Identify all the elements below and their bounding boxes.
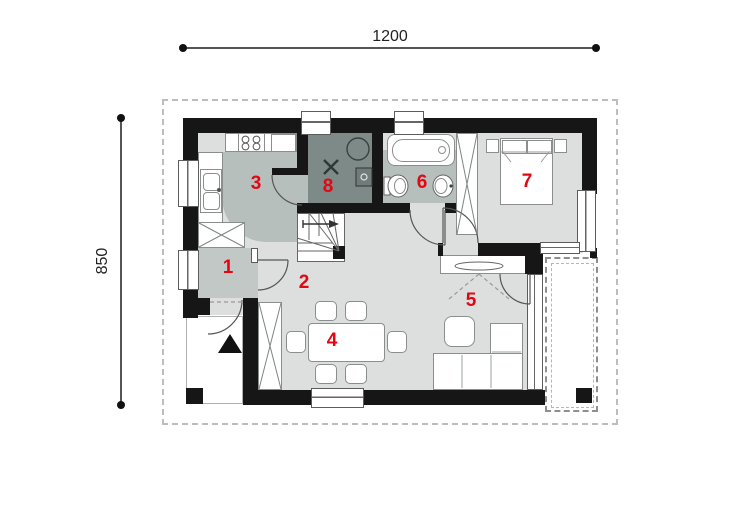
floor-plan: 1200 850 xyxy=(0,0,735,520)
wardrobe-bedroom xyxy=(456,133,478,235)
window-bathroom xyxy=(394,111,424,135)
dimension-width-label: 1200 xyxy=(350,28,430,46)
wardrobe-entry xyxy=(198,222,245,248)
pillow xyxy=(502,140,527,154)
pillow xyxy=(527,140,552,154)
nightstand xyxy=(486,139,499,153)
chair xyxy=(387,331,407,353)
coffee-table xyxy=(444,316,475,347)
dimension-dot xyxy=(117,401,125,409)
dimension-dot xyxy=(179,44,187,52)
porch-post xyxy=(186,388,203,404)
wall-bathroom-bottom-left xyxy=(383,203,410,213)
dimension-dot xyxy=(117,114,125,122)
chair xyxy=(315,301,337,321)
room-label-2: 2 xyxy=(299,272,310,294)
wardrobe-hall xyxy=(258,302,282,390)
window-bedroom-south xyxy=(540,242,580,254)
wall-bedroom-partition-left xyxy=(438,243,443,256)
room-label-1: 1 xyxy=(223,257,234,279)
wall-exterior-bottom xyxy=(243,390,545,405)
chair xyxy=(315,364,337,384)
sofa-section xyxy=(433,353,523,390)
room-label-4: 4 xyxy=(327,330,338,352)
dimension-height-label: 850 xyxy=(94,221,114,301)
wall-living-stub xyxy=(525,253,543,274)
floor-utility-room xyxy=(308,133,372,203)
door-jamb-entry xyxy=(251,248,258,263)
kitchen-sink xyxy=(200,169,222,213)
wall-exterior-right xyxy=(582,118,597,194)
wall-exterior-top xyxy=(183,118,597,133)
wall-interior-hall xyxy=(243,298,258,405)
wall-utility-bottom xyxy=(297,203,383,213)
chair xyxy=(345,301,367,321)
wall-bathroom-bottom-right xyxy=(445,203,456,213)
sink-basin xyxy=(203,192,220,210)
nightstand xyxy=(554,139,567,153)
terrace-post xyxy=(576,388,592,403)
chair xyxy=(286,331,306,353)
room-label-8: 8 xyxy=(323,176,334,198)
dimension-line-left xyxy=(120,118,122,405)
kitchen-cabinet xyxy=(271,134,296,152)
dining-table xyxy=(308,323,385,362)
chair xyxy=(345,364,367,384)
tv-cabinet xyxy=(440,255,528,274)
room-label-6: 6 xyxy=(417,172,428,194)
sink-basin xyxy=(203,173,220,191)
door-leaf-utility xyxy=(272,168,302,175)
dimension-dot xyxy=(592,44,600,52)
window-entry-hall xyxy=(178,250,199,290)
window-utility xyxy=(301,111,331,135)
room-label-3: 3 xyxy=(251,173,262,195)
window-dining xyxy=(311,388,364,408)
window-kitchen xyxy=(178,160,199,207)
bathtub xyxy=(387,134,455,166)
dimension-line-top xyxy=(183,47,596,49)
cooktop xyxy=(238,133,265,152)
terrace-inner-edge xyxy=(551,263,594,408)
wall-entry-stub xyxy=(183,298,210,315)
bathtub-inner xyxy=(392,139,450,162)
stair-newel-post xyxy=(333,246,345,259)
room-label-7: 7 xyxy=(522,171,533,193)
window-living-terrace xyxy=(527,274,543,390)
room-label-5: 5 xyxy=(466,290,477,312)
wall-utility-bathroom xyxy=(372,118,383,213)
